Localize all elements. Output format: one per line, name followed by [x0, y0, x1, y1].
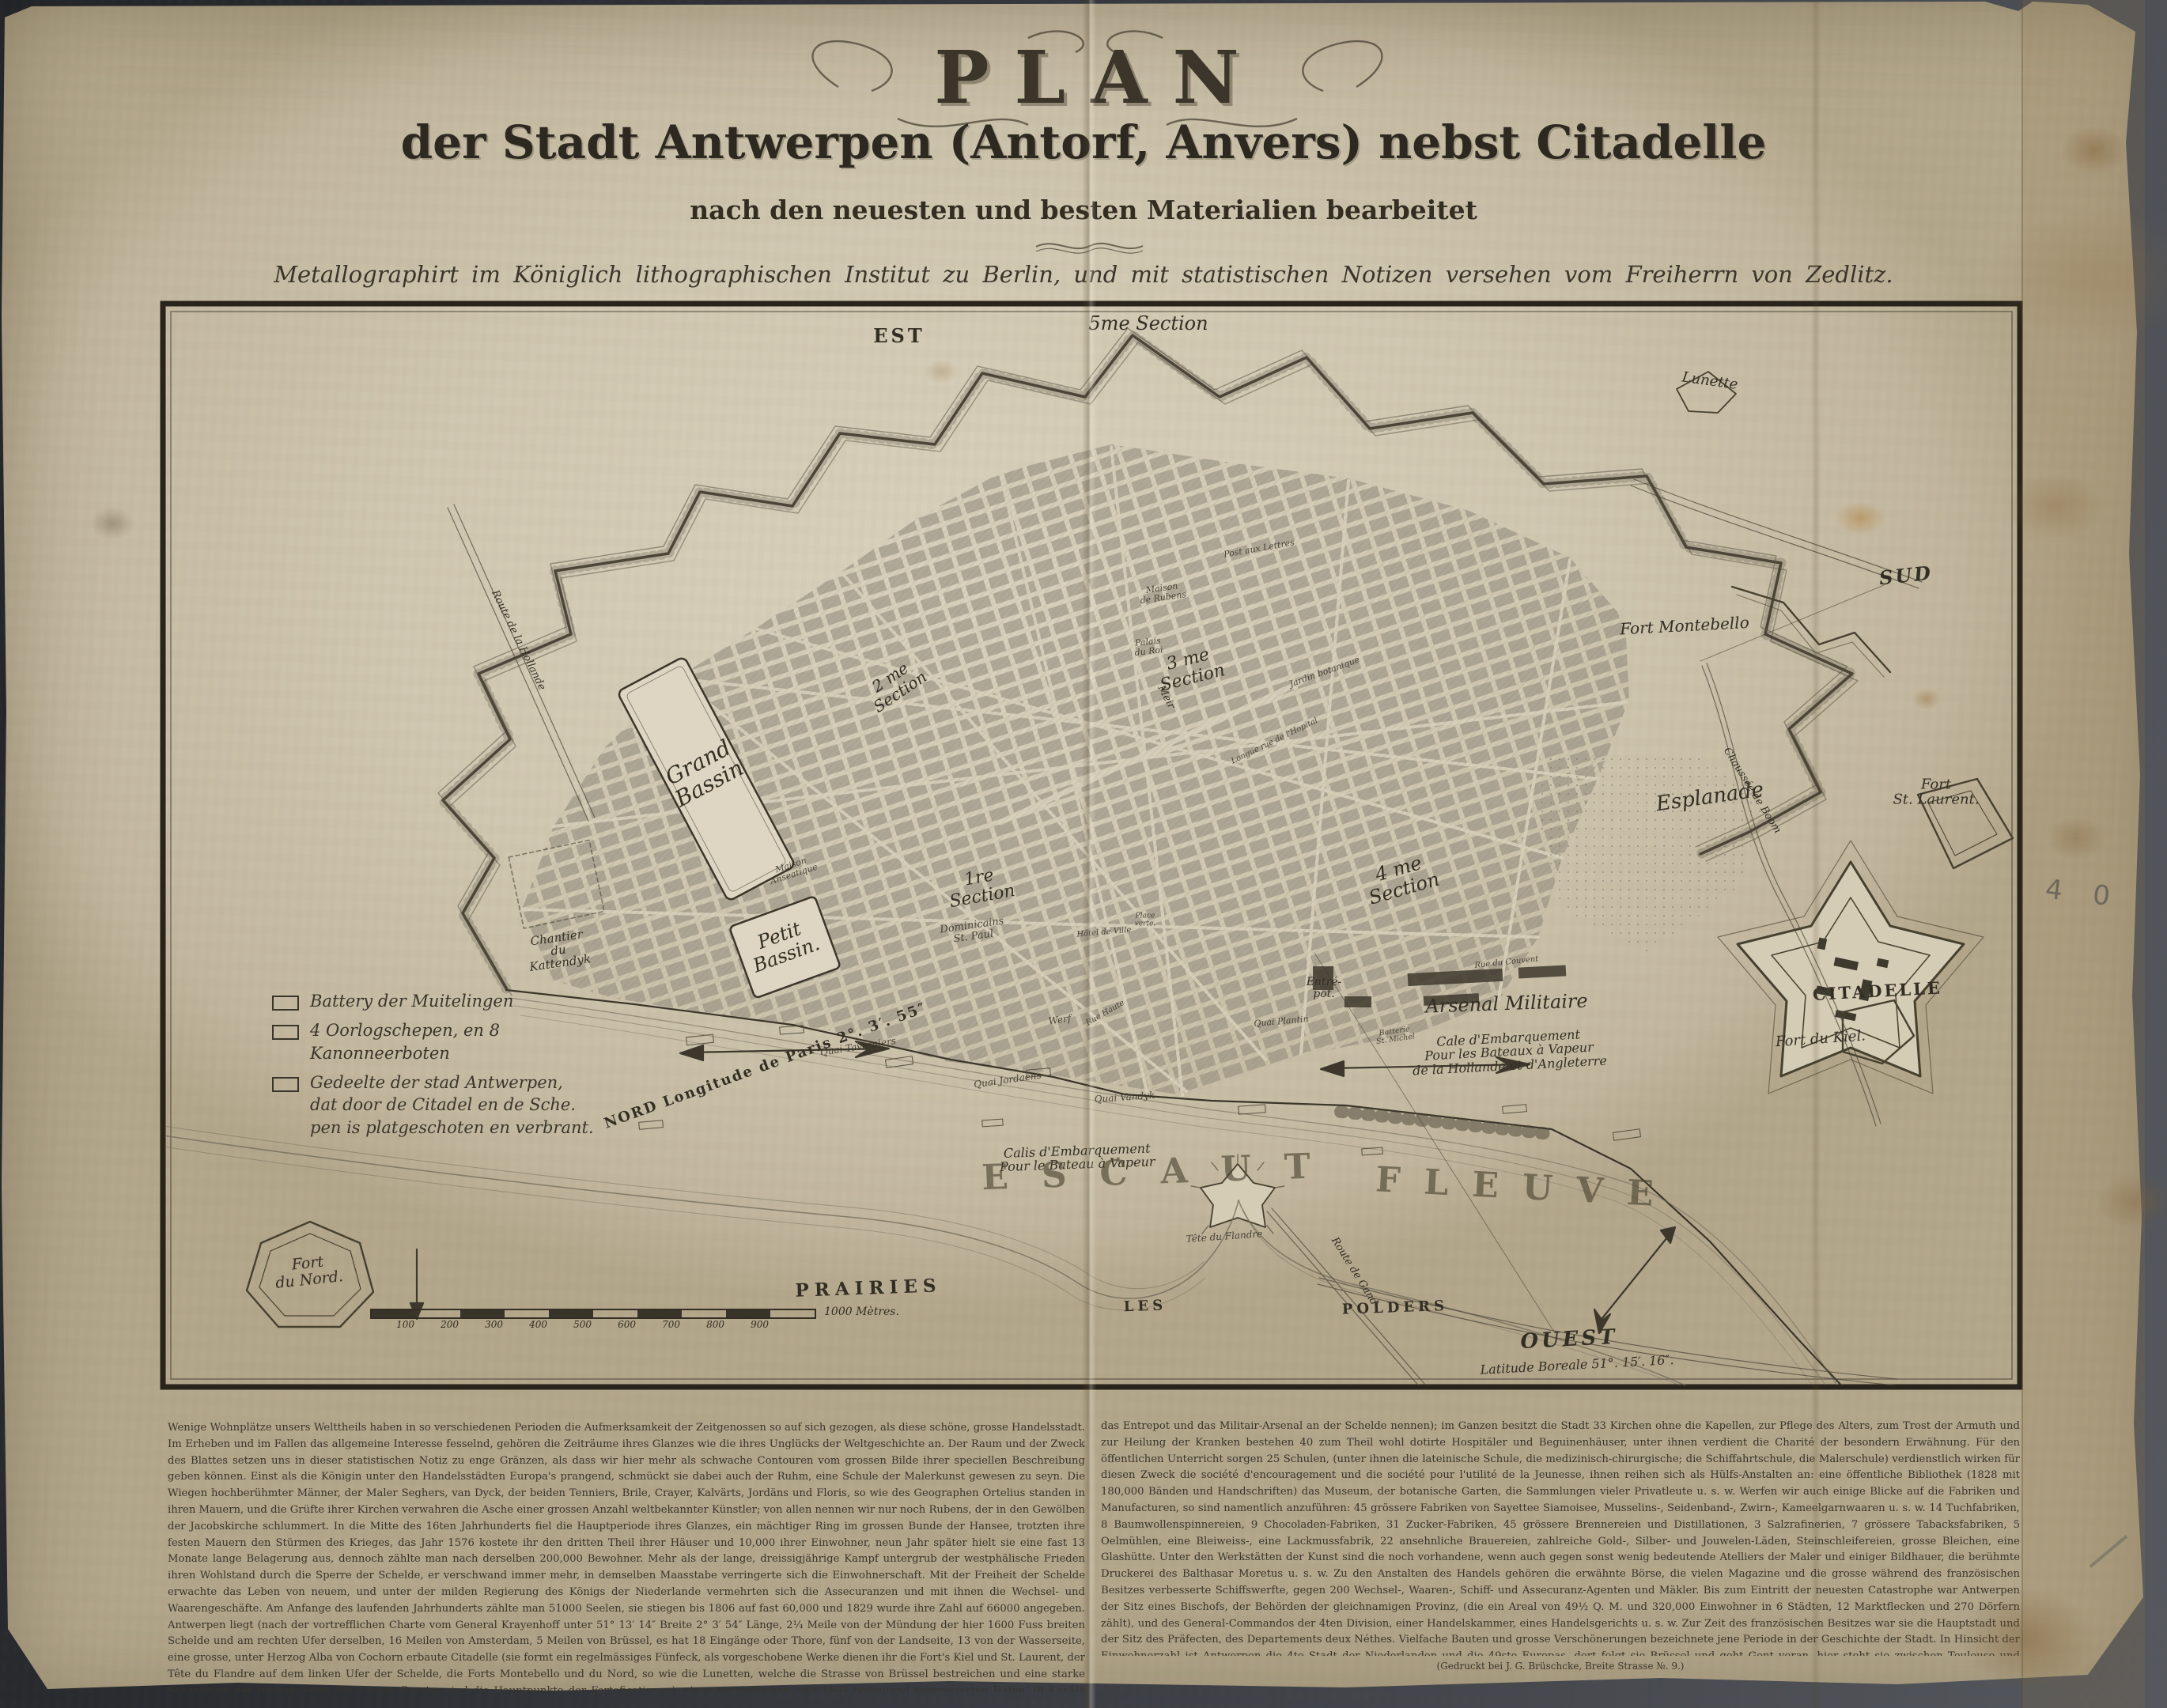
scale-tick-label: 200	[414, 1319, 459, 1330]
scale-tick-label: 500	[547, 1319, 592, 1330]
scale-tick-label: 800	[680, 1319, 724, 1330]
photo-backdrop: PLAN der Stadt Antwerpen (Antorf, Anvers…	[0, 0, 2167, 1708]
scale-bar-rule	[370, 1309, 816, 1319]
map-legend: Battery der Muitelingen4 Oorlogschepen, …	[272, 990, 644, 1146]
map-credit-line: Metallographirt im Königlich lithographi…	[134, 261, 2033, 288]
legend-item-label: 4 Oorlogschepen, en 8 Kanonneerboten	[310, 1019, 500, 1064]
scale-tick-label: 400	[503, 1319, 547, 1330]
lunette-fort	[1677, 372, 1736, 413]
map-subtitle: der Stadt Antwerpen (Antorf, Anvers) neb…	[293, 115, 1874, 169]
scale-tick-label: 100	[370, 1319, 414, 1330]
scale-bar-unit: 1000 Mètres.	[824, 1306, 899, 1318]
tete-du-flandre-fort	[1191, 1154, 1284, 1234]
scale-bar-ticks: 100200300400500600700800900	[370, 1319, 818, 1330]
legend-item-label: Battery der Muitelingen	[310, 990, 513, 1012]
notes-right-column: das Entrepot und das Militair-Arsenal an…	[1101, 1419, 2020, 1656]
legend-item: Battery der Muitelingen	[272, 990, 644, 1012]
esplanade-area	[1539, 753, 1765, 954]
legend-item: Gedeelte der stad Antwerpen, dat door de…	[272, 1071, 644, 1139]
map-title: PLAN	[830, 35, 1368, 120]
scale-tick-label: 300	[459, 1319, 503, 1330]
legend-swatch-icon	[272, 996, 299, 1011]
scale-bar: 100200300400500600700800900 1000 Mètres.	[370, 1309, 924, 1330]
legend-item-label: Gedeelte der stad Antwerpen, dat door de…	[310, 1071, 594, 1139]
notes-left-column: Wenige Wohnplätze unsers Welttheils habe…	[168, 1420, 1085, 1692]
scale-tick-label: 900	[724, 1319, 769, 1330]
legend-swatch-icon	[272, 1077, 299, 1092]
printer-imprint: (Gedruckt bei J. G. Brüschcke, Breite St…	[1101, 1661, 2020, 1672]
fort-du-nord	[247, 1222, 373, 1327]
legend-swatch-icon	[272, 1025, 299, 1040]
scale-tick-label: 700	[636, 1319, 680, 1330]
scale-tick-label: 600	[592, 1319, 636, 1330]
map-subtitle-2: nach den neuesten und besten Materialien…	[530, 195, 1637, 225]
legend-item: 4 Oorlogschepen, en 8 Kanonneerboten	[272, 1019, 644, 1064]
